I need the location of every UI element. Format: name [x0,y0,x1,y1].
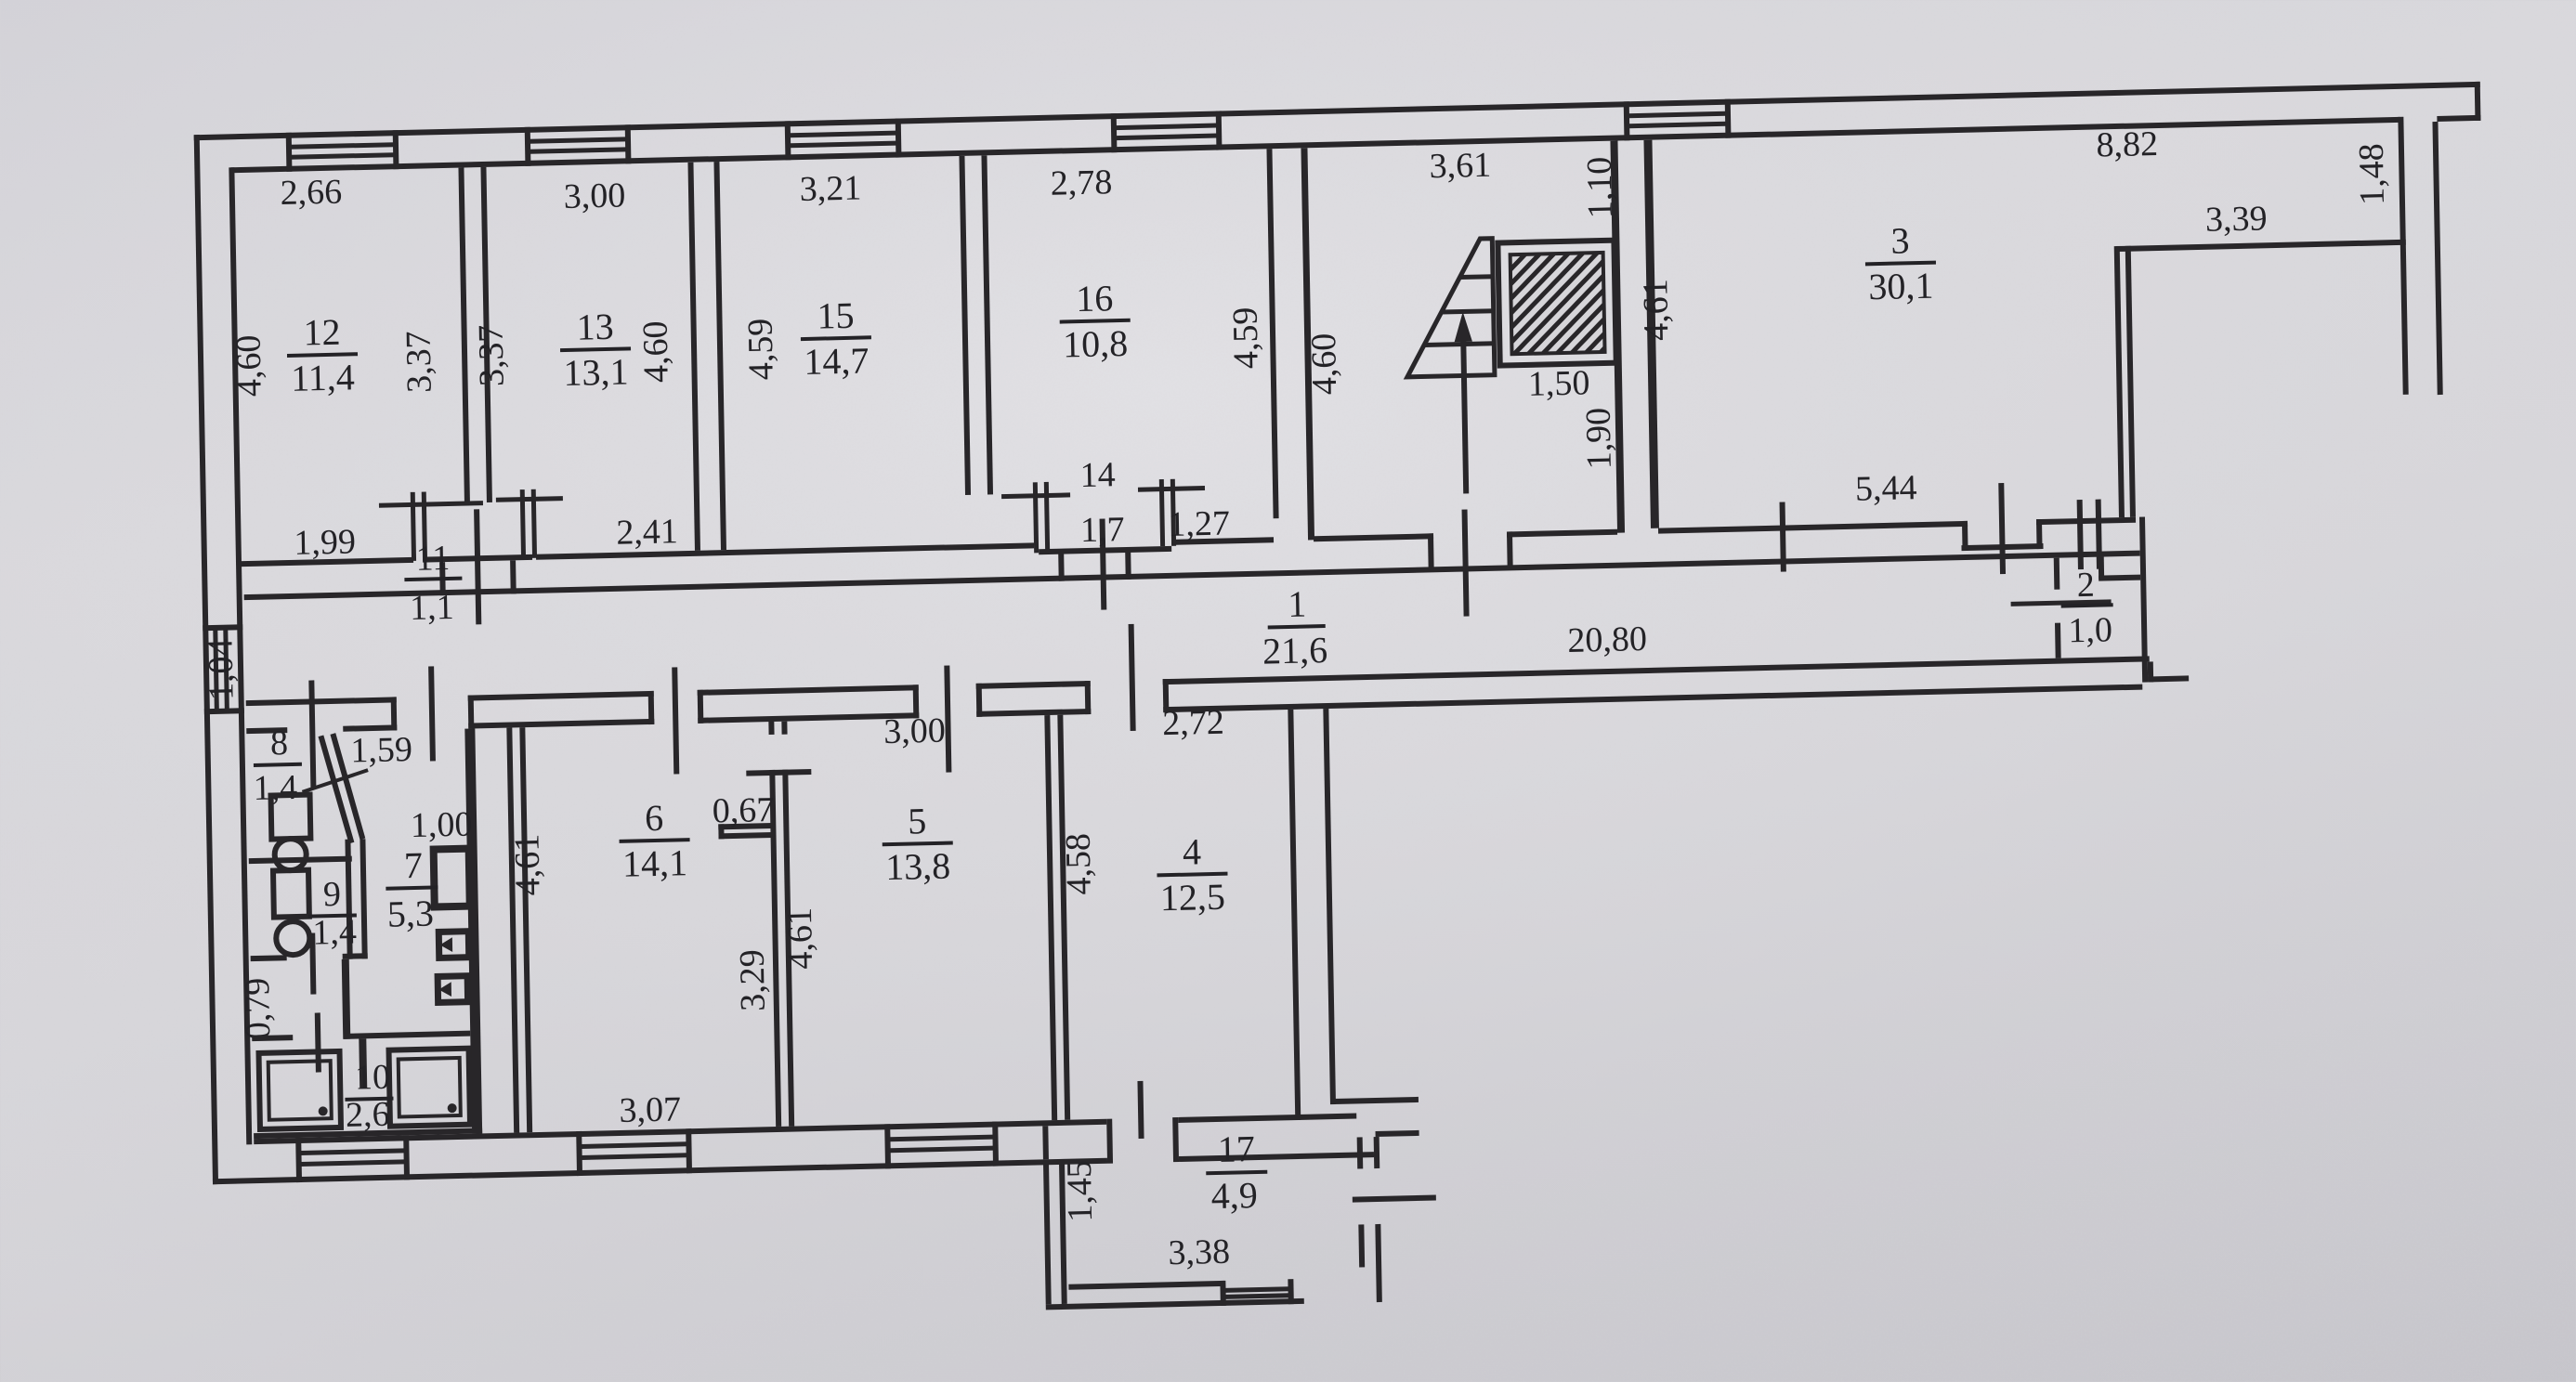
svg-text:1,48: 1,48 [2352,143,2392,205]
svg-text:10,8: 10,8 [1063,322,1129,366]
svg-text:0,67: 0,67 [712,790,774,831]
svg-text:21,6: 21,6 [1262,629,1328,672]
svg-text:4,58: 4,58 [1059,833,1099,895]
svg-text:14: 14 [1079,455,1116,495]
svg-text:14,1: 14,1 [622,841,688,885]
svg-text:1,1: 1,1 [410,588,454,628]
svg-text:2,6: 2,6 [346,1095,390,1135]
svg-text:16: 16 [1076,277,1114,319]
svg-text:20,80: 20,80 [1567,619,1647,660]
svg-text:5,3: 5,3 [386,893,434,935]
svg-text:30,1: 30,1 [1868,265,1934,308]
svg-text:1,90: 1,90 [1579,407,1619,469]
svg-text:1,04: 1,04 [201,638,241,700]
svg-text:4,60: 4,60 [1304,332,1344,395]
svg-text:14,7: 14,7 [804,339,870,383]
svg-text:7: 7 [404,844,424,886]
svg-text:11,4: 11,4 [291,356,355,399]
svg-text:1,00: 1,00 [411,805,473,846]
svg-text:5,44: 5,44 [1855,468,1917,509]
svg-text:2,78: 2,78 [1050,163,1112,203]
svg-text:3,37: 3,37 [399,331,439,393]
svg-text:15: 15 [817,294,855,337]
svg-text:13: 13 [576,306,614,348]
svg-text:4,61: 4,61 [780,907,820,970]
svg-text:6: 6 [645,797,664,839]
svg-text:4: 4 [1183,830,1202,872]
svg-text:3,38: 3,38 [1168,1232,1230,1273]
svg-text:0,79: 0,79 [238,977,278,1039]
svg-text:2,41: 2,41 [616,512,678,553]
svg-text:1,59: 1,59 [350,730,412,771]
svg-text:3: 3 [1890,219,1910,261]
svg-text:12: 12 [303,311,341,354]
svg-text:3,00: 3,00 [563,176,625,216]
svg-text:2,72: 2,72 [1162,703,1224,744]
svg-text:1,7: 1,7 [1080,510,1125,550]
svg-text:13,8: 13,8 [885,845,951,889]
svg-text:9: 9 [323,875,342,914]
svg-text:13,1: 13,1 [563,350,629,394]
svg-text:3,07: 3,07 [619,1089,681,1130]
svg-text:5: 5 [908,800,927,841]
svg-text:1,99: 1,99 [294,522,356,563]
svg-text:1,4: 1,4 [253,768,297,808]
svg-text:3,29: 3,29 [733,949,773,1011]
svg-text:12,5: 12,5 [1160,876,1226,919]
svg-text:4,61: 4,61 [1636,279,1676,341]
svg-text:8: 8 [270,724,289,763]
svg-text:2,66: 2,66 [280,173,342,214]
svg-text:4,9: 4,9 [1210,1174,1258,1217]
svg-text:8,82: 8,82 [2096,124,2158,165]
svg-text:1,27: 1,27 [1168,503,1230,544]
svg-text:3,39: 3,39 [2205,199,2268,240]
svg-text:1: 1 [1288,583,1307,625]
svg-text:2: 2 [2076,566,2095,605]
svg-text:1,0: 1,0 [2068,610,2112,650]
svg-text:4,60: 4,60 [229,334,269,397]
svg-text:4,61: 4,61 [507,833,547,895]
svg-text:4,59: 4,59 [741,318,781,380]
svg-text:11: 11 [415,539,450,579]
svg-text:17: 17 [1217,1128,1255,1170]
svg-text:3,00: 3,00 [883,711,946,752]
svg-text:1,10: 1,10 [1580,156,1620,218]
svg-text:1,45: 1,45 [1060,1160,1100,1222]
svg-text:4,60: 4,60 [636,320,676,383]
svg-text:3,21: 3,21 [799,168,861,209]
svg-text:10: 10 [355,1058,391,1098]
svg-text:1,50: 1,50 [1528,363,1590,404]
svg-text:3,37: 3,37 [472,324,512,386]
svg-text:4,59: 4,59 [1226,306,1266,369]
svg-text:3,61: 3,61 [1429,146,1491,187]
svg-text:1,4: 1,4 [312,912,357,952]
